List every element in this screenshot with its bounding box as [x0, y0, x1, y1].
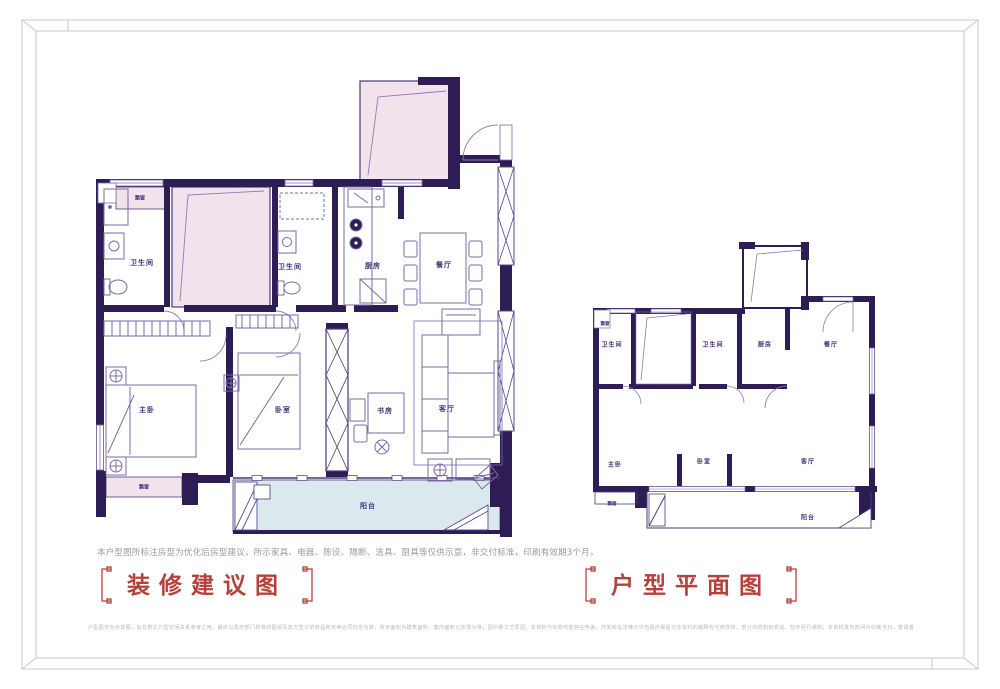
- room-label-bay-bottom: 飘窗: [608, 501, 617, 507]
- layout-plan-title: 户型平面图: [611, 574, 771, 597]
- room-label-bath1: 卫生间: [601, 340, 622, 349]
- decorated-plan-title-block: 装修建议图: [98, 566, 316, 604]
- layout-plan-drawing: [585, 240, 885, 545]
- master-wardrobe: [104, 321, 210, 336]
- room-label-master: 主卧: [608, 460, 622, 469]
- layout-plan: 飘窗 卫生间 卫生间 厨房 餐厅 主卧 卧室 客厅 飘窗 阳台: [585, 240, 885, 545]
- title-bracket-left-icon: [582, 566, 597, 604]
- page: 飘窗 卫生间 卫生间 厨房 餐厅 主卧 卧室 书房 客厅 飘窗 阳台: [0, 0, 1000, 689]
- title-bracket-left-icon: [98, 566, 113, 604]
- window-midlines: [649, 348, 872, 489]
- bedroom-wardrobe: [236, 315, 298, 328]
- room-label-living: 客厅: [439, 404, 455, 414]
- room-label-dining: 餐厅: [824, 340, 838, 349]
- room-label-study: 书房: [377, 406, 393, 416]
- room-label-bedroom: 卧室: [275, 405, 291, 415]
- decorated-plan-drawing: [92, 75, 535, 545]
- room-label-master: 主卧: [139, 405, 155, 415]
- balcony: [647, 492, 871, 528]
- room-label-bath2: 卫生间: [702, 340, 723, 349]
- room-label-bay-top: 飘窗: [601, 321, 610, 327]
- room-label-living: 客厅: [801, 457, 815, 466]
- walls: [96, 77, 512, 537]
- sofa: [422, 335, 448, 453]
- furniture: [104, 187, 502, 489]
- layout-plan-title-block: 户型平面图: [582, 566, 800, 604]
- decorated-plan: 飘窗 卫生间 卫生间 厨房 餐厅 主卧 卧室 书房 客厅 飘窗 阳台: [92, 75, 535, 545]
- top-room: [739, 242, 809, 310]
- closet-diagonal: [636, 312, 691, 384]
- master-bed: [106, 385, 196, 457]
- title-bracket-right-icon: [785, 566, 800, 604]
- title-bracket-right-icon: [301, 566, 316, 604]
- room-label-balcony: 阳台: [801, 513, 815, 522]
- room-label-kitchen: 厨房: [758, 340, 772, 349]
- room-label-balcony: 阳台: [360, 501, 376, 511]
- plan-note: 本户型图所标注房型为优化后房型建议，所示家具、电器、陈设、隔断、洁具、厨具等仅供…: [97, 546, 657, 558]
- room-label-bedroom: 卧室: [697, 457, 711, 466]
- living-rug: [414, 321, 502, 465]
- room-label-bath2: 卫生间: [278, 262, 302, 272]
- room-label-bay-top: 飘窗: [135, 195, 145, 202]
- legal-disclaimer: 户型图仅为示意图，旨在表达户型空间关系参考之用，最终以政府部门核准的图纸及双方签…: [88, 624, 914, 631]
- decorated-plan-title: 装修建议图: [127, 574, 287, 597]
- room-label-dining: 餐厅: [436, 260, 452, 270]
- room-label-kitchen: 厨房: [365, 261, 381, 271]
- room-label-bath1: 卫生间: [130, 258, 154, 268]
- hatched-column: [326, 329, 348, 471]
- room-label-bay-bottom: 飘窗: [139, 484, 149, 491]
